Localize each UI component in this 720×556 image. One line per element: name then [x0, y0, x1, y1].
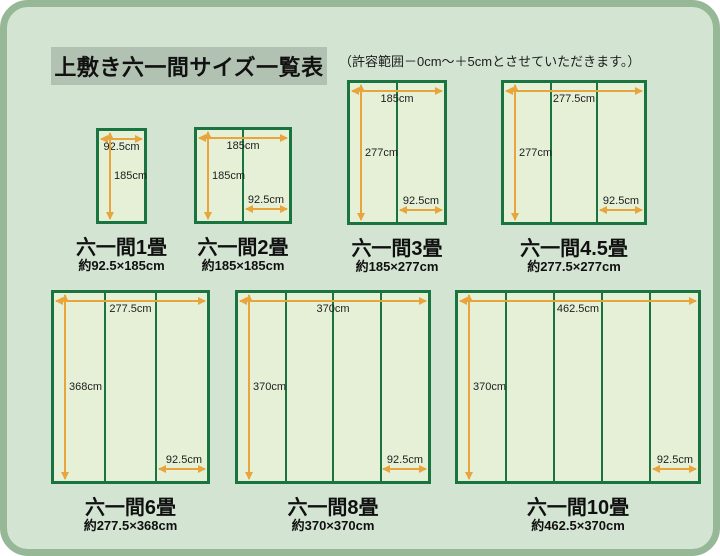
height-dimension-label: 277cm: [519, 147, 552, 159]
mat-divider: [553, 293, 555, 481]
panel-width-dimension-label: 92.5cm: [403, 195, 439, 207]
page-title: 上敷き六一間サイズ一覧表: [51, 47, 327, 85]
panel-width-dimension-line: [653, 468, 696, 470]
width-dimension-label: 277.5cm: [109, 303, 151, 315]
mat-outline: 462.5cm370cm92.5cm: [455, 290, 701, 484]
height-dimension-label: 185cm: [114, 170, 147, 182]
mat-outline: 185cm185cm92.5cm: [194, 127, 292, 224]
mat-figure-3jo: 185cm277cm92.5cm六一間3畳約185×277cm: [347, 80, 447, 225]
mat-figure-4_5jo: 277.5cm277cm92.5cm六一間4.5畳約277.5×277cm: [501, 80, 647, 225]
height-dimension-line: [64, 295, 66, 479]
panel-width-dimension-line: [246, 208, 287, 210]
mat-size-label: 約185×277cm: [356, 256, 439, 275]
panel-width-dimension-label: 92.5cm: [166, 454, 202, 466]
panel-width-dimension-line: [383, 468, 426, 470]
mat-divider: [649, 293, 651, 481]
mat-divider: [155, 293, 157, 481]
panel-width-dimension-line: [400, 209, 442, 211]
width-dimension-line: [506, 90, 642, 92]
height-dimension-label: 277cm: [365, 147, 398, 159]
mat-outline: 92.5cm185cm: [96, 128, 147, 224]
width-dimension-line: [460, 300, 696, 302]
mat-outline: 277.5cm277cm92.5cm: [501, 80, 647, 225]
mat-outline: 370cm370cm92.5cm: [235, 290, 431, 484]
mat-divider: [332, 293, 334, 481]
width-dimension-label: 370cm: [316, 303, 349, 315]
panel-width-dimension-line: [600, 209, 642, 211]
width-dimension-line: [352, 90, 442, 92]
width-dimension-label: 462.5cm: [557, 303, 599, 315]
mat-divider: [380, 293, 382, 481]
width-dimension-line: [199, 137, 287, 139]
mat-outline: 277.5cm368cm92.5cm: [51, 290, 210, 484]
panel-width-dimension-label: 92.5cm: [387, 454, 423, 466]
mat-divider: [596, 83, 598, 222]
mat-size-label: 約92.5×185cm: [78, 255, 164, 274]
height-dimension-label: 185cm: [212, 170, 245, 182]
mat-figure-10jo: 462.5cm370cm92.5cm六一間10畳約462.5×370cm: [455, 290, 701, 484]
width-dimension-line: [56, 300, 205, 302]
width-dimension-line: [240, 300, 426, 302]
height-dimension-line: [248, 295, 250, 479]
panel-width-dimension-label: 92.5cm: [657, 454, 693, 466]
mat-divider: [601, 293, 603, 481]
height-dimension-label: 368cm: [69, 381, 102, 393]
mat-figure-1jo: 92.5cm185cm六一間1畳約92.5×185cm: [96, 128, 147, 224]
panel-width-dimension-line: [159, 468, 205, 470]
mat-figure-8jo: 370cm370cm92.5cm六一間8畳約370×370cm: [235, 290, 431, 484]
mat-divider: [104, 293, 106, 481]
mat-size-label: 約462.5×370cm: [531, 515, 625, 534]
tolerance-note: （許容範囲－0cm～＋5cmとさせていただきます。）: [339, 51, 640, 70]
height-dimension-label: 370cm: [253, 381, 286, 393]
size-chart-frame: 上敷き六一間サイズ一覧表 （許容範囲－0cm～＋5cmとさせていただきます。） …: [0, 0, 720, 556]
mat-figure-2jo: 185cm185cm92.5cm六一間2畳約185×185cm: [194, 127, 292, 224]
width-dimension-label: 185cm: [380, 93, 413, 105]
height-dimension-line: [207, 132, 209, 219]
width-dimension-label: 277.5cm: [553, 93, 595, 105]
mat-figure-6jo: 277.5cm368cm92.5cm六一間6畳約277.5×368cm: [51, 290, 210, 484]
mat-size-label: 約185×185cm: [202, 255, 285, 274]
height-dimension-line: [514, 85, 516, 220]
mat-size-label: 約277.5×277cm: [527, 256, 621, 275]
mat-size-label: 約277.5×368cm: [84, 515, 178, 534]
height-dimension-line: [360, 85, 362, 220]
height-dimension-label: 370cm: [473, 381, 506, 393]
height-dimension-line: [468, 295, 470, 479]
panel-width-dimension-label: 92.5cm: [248, 194, 284, 206]
width-dimension-label: 185cm: [226, 140, 259, 152]
panel-width-dimension-label: 92.5cm: [603, 195, 639, 207]
mat-size-label: 約370×370cm: [292, 515, 375, 534]
height-dimension-line: [109, 133, 111, 219]
mat-outline: 185cm277cm92.5cm: [347, 80, 447, 225]
